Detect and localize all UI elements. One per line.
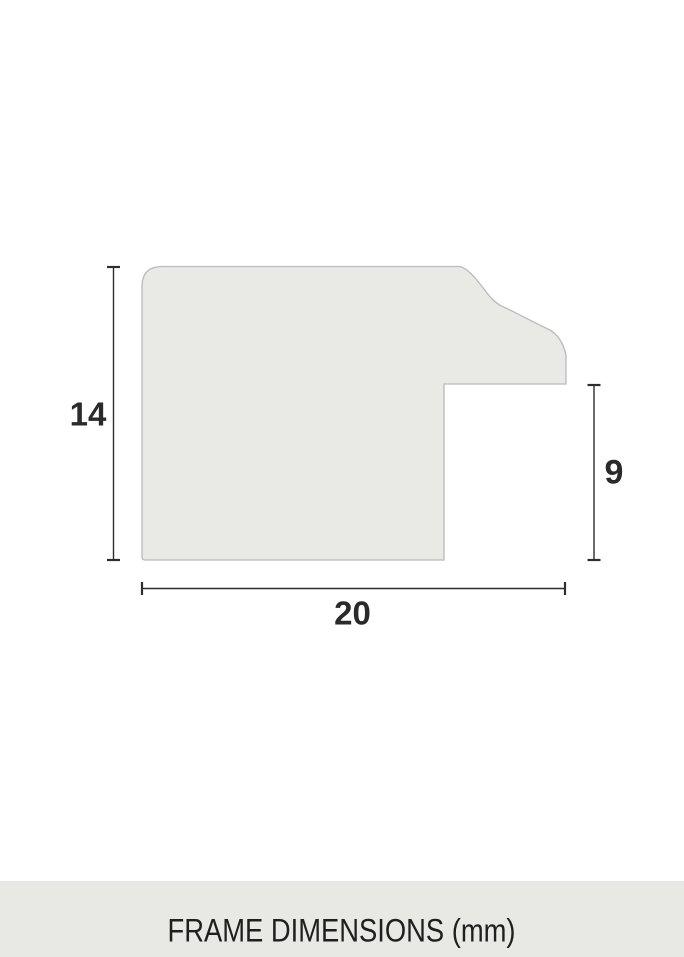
svg-text:9: 9 (605, 454, 624, 492)
svg-text:14: 14 (70, 396, 107, 433)
svg-text:FRAME DIMENSIONS (mm): FRAME DIMENSIONS (mm) (168, 913, 516, 949)
svg-text:20: 20 (334, 595, 371, 632)
